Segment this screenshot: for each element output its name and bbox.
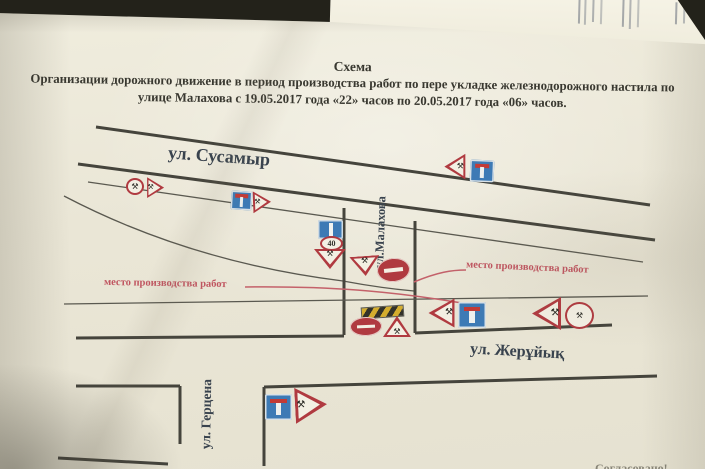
- paper-sheen: [0, 0, 705, 469]
- photo-scene: Схема Организации дорожного движение в п…: [0, 0, 705, 469]
- underlying-paper-marks: [622, 0, 625, 27]
- underlying-paper-marks: [675, 2, 678, 24]
- document-paper: Схема Организации дорожного движение в п…: [0, 0, 705, 469]
- underlying-paper-marks: [578, 0, 581, 24]
